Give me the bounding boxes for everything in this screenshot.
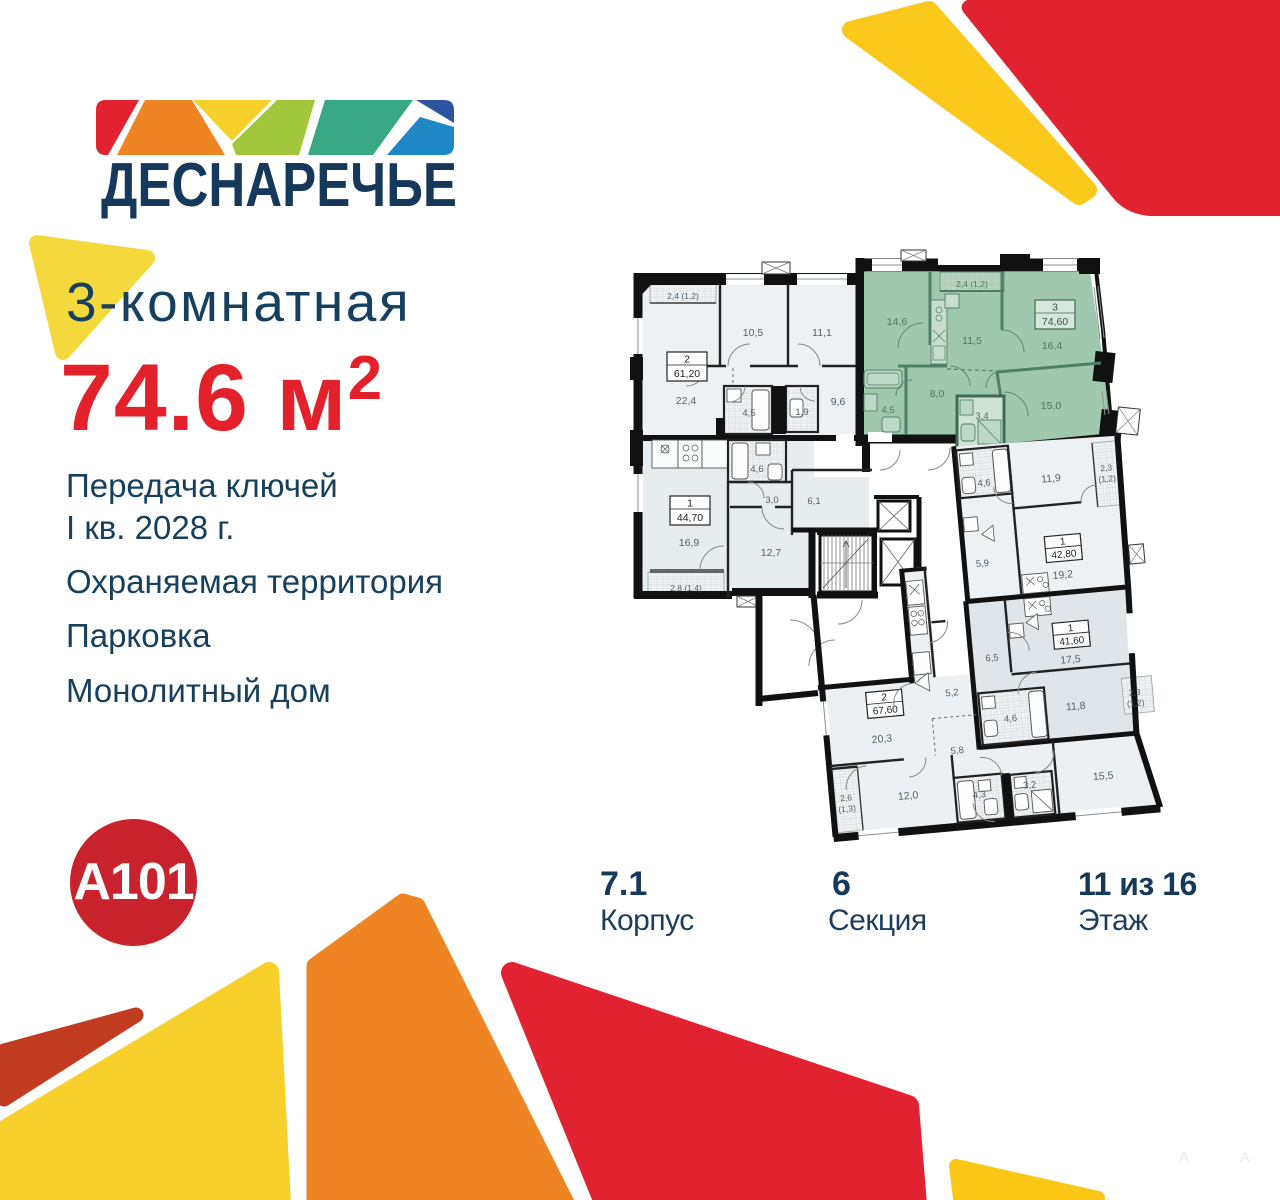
svg-text:3: 3 <box>1052 302 1058 314</box>
svg-text:14,6: 14,6 <box>887 316 908 328</box>
svg-text:(1,3): (1,3) <box>838 803 856 815</box>
svg-text:(1,2): (1,2) <box>1127 697 1145 709</box>
svg-text:67,60: 67,60 <box>872 704 898 717</box>
svg-text:1: 1 <box>687 498 693 510</box>
svg-text:2,6: 2,6 <box>840 792 853 803</box>
svg-text:4,3: 4,3 <box>972 789 986 801</box>
svg-text:5,2: 5,2 <box>945 687 959 699</box>
svg-text:15,5: 15,5 <box>1092 769 1114 783</box>
svg-text:(1,2): (1,2) <box>1098 473 1116 485</box>
svg-text:3,4: 3,4 <box>975 411 988 422</box>
svg-text:41,60: 41,60 <box>1059 635 1085 648</box>
svg-text:15,0: 15,0 <box>1041 400 1062 412</box>
svg-text:4,5: 4,5 <box>881 405 894 416</box>
svg-text:61,20: 61,20 <box>674 368 700 380</box>
svg-text:11,8: 11,8 <box>1065 700 1086 714</box>
svg-text:2,4 (1,2): 2,4 (1,2) <box>956 279 988 289</box>
svg-text:2,4 (1,2): 2,4 (1,2) <box>667 291 699 301</box>
svg-text:1,9: 1,9 <box>795 407 808 418</box>
svg-text:11,9: 11,9 <box>1041 472 1062 486</box>
svg-text:10,5: 10,5 <box>743 327 764 339</box>
svg-text:5,8: 5,8 <box>950 745 964 757</box>
svg-text:44,70: 44,70 <box>677 512 703 524</box>
svg-text:6,1: 6,1 <box>807 496 820 507</box>
svg-text:4,6: 4,6 <box>1004 713 1018 725</box>
svg-text:20,3: 20,3 <box>871 732 893 746</box>
svg-text:16,4: 16,4 <box>1042 340 1063 352</box>
svg-text:9,6: 9,6 <box>831 396 846 408</box>
svg-text:3,2: 3,2 <box>1023 779 1037 791</box>
svg-text:12,7: 12,7 <box>761 547 782 559</box>
svg-text:74,60: 74,60 <box>1042 316 1068 328</box>
svg-text:2,8 (1,4): 2,8 (1,4) <box>670 583 702 593</box>
svg-text:2,3: 2,3 <box>1100 462 1113 473</box>
svg-text:8,0: 8,0 <box>930 388 945 400</box>
svg-text:2,3: 2,3 <box>1128 687 1141 698</box>
svg-text:5,9: 5,9 <box>975 558 989 570</box>
svg-text:4,6: 4,6 <box>750 464 763 475</box>
svg-text:2: 2 <box>684 354 690 366</box>
svg-text:11,5: 11,5 <box>962 335 982 347</box>
svg-text:19,2: 19,2 <box>1052 568 1074 582</box>
svg-text:17,5: 17,5 <box>1060 653 1082 667</box>
svg-text:12,0: 12,0 <box>897 789 919 803</box>
svg-text:11,1: 11,1 <box>812 327 832 339</box>
svg-text:3,0: 3,0 <box>765 495 778 506</box>
svg-text:4,5: 4,5 <box>742 408 755 419</box>
svg-text:6,5: 6,5 <box>985 652 999 664</box>
svg-text:42,80: 42,80 <box>1051 548 1077 561</box>
svg-text:16,9: 16,9 <box>679 537 700 549</box>
svg-text:4,6: 4,6 <box>977 477 991 489</box>
svg-text:22,4: 22,4 <box>676 395 697 407</box>
